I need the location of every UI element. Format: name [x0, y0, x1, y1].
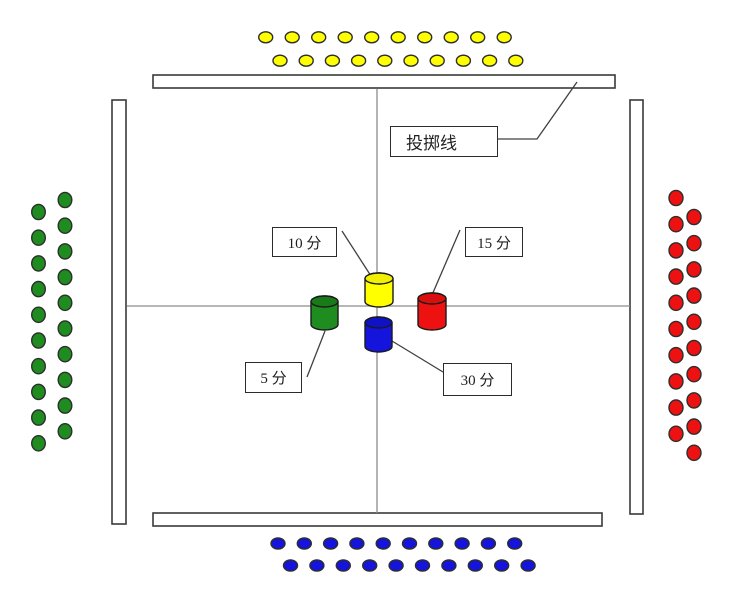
chip [32, 410, 46, 425]
chip [508, 538, 522, 549]
score-cylinders [311, 273, 446, 352]
chip [297, 538, 311, 549]
score-30-label: 30 分 [443, 363, 512, 396]
yellow-chips-top [259, 32, 523, 66]
green-chips-left [32, 192, 72, 451]
chip [325, 55, 339, 66]
chip [687, 288, 701, 303]
chip [483, 55, 497, 66]
chip [669, 243, 683, 258]
chip [58, 321, 72, 336]
left-wall [112, 100, 126, 524]
chip [32, 384, 46, 399]
chip [418, 32, 432, 43]
chip [32, 204, 46, 219]
chip [687, 445, 701, 460]
chip [471, 32, 485, 43]
chip [687, 209, 701, 224]
score-10-label-text: 10 分 [288, 232, 322, 253]
chip [403, 538, 417, 549]
score-5-label: 5 分 [245, 362, 302, 393]
chip [429, 538, 443, 549]
chip [338, 32, 352, 43]
chip [669, 269, 683, 284]
throw-line-label: 投掷线 [390, 126, 498, 157]
chip [58, 424, 72, 439]
chip [669, 348, 683, 363]
chip [669, 321, 683, 336]
chip [430, 55, 444, 66]
chip [468, 560, 482, 571]
chip [32, 359, 46, 374]
chip [509, 55, 523, 66]
chip [669, 426, 683, 441]
chip [687, 393, 701, 408]
chip [58, 398, 72, 413]
score-10-callout [342, 231, 371, 276]
score-15-label: 15 分 [465, 227, 523, 257]
chip [32, 307, 46, 322]
chip [32, 333, 46, 348]
chip [284, 560, 298, 571]
chip [299, 55, 313, 66]
chip [442, 560, 456, 571]
diagram-canvas [0, 0, 750, 593]
yellow-cylinder-top [365, 273, 393, 284]
chip [324, 538, 338, 549]
chip [58, 295, 72, 310]
top-wall [153, 75, 615, 88]
chip [495, 560, 509, 571]
red-cylinder [418, 293, 446, 330]
chip [273, 55, 287, 66]
chip [58, 192, 72, 207]
chip [669, 217, 683, 232]
chip [310, 560, 324, 571]
throw-line-label-text: 投掷线 [406, 129, 457, 154]
chip [58, 244, 72, 259]
chip [687, 236, 701, 251]
chip [58, 347, 72, 362]
score-15-callout [432, 230, 460, 295]
chip [497, 32, 511, 43]
chip [669, 190, 683, 205]
chip [271, 538, 285, 549]
chip [32, 230, 46, 245]
green-cylinder-top [311, 296, 338, 307]
chip [378, 55, 392, 66]
blue-cylinder [365, 317, 392, 352]
chip [687, 314, 701, 329]
chip [444, 32, 458, 43]
chip [416, 560, 430, 571]
chip [350, 538, 364, 549]
chip [58, 372, 72, 387]
chip [687, 367, 701, 382]
red-cylinder-top [418, 293, 446, 304]
chip [669, 374, 683, 389]
chip [285, 32, 299, 43]
throw-line-callout [498, 82, 577, 139]
chip [58, 218, 72, 233]
chip [456, 55, 470, 66]
blue-chips-bottom [271, 538, 535, 571]
chip [521, 560, 535, 571]
chip [404, 55, 418, 66]
chip [32, 256, 46, 271]
score-10-label: 10 分 [272, 227, 337, 257]
red-chips-right [669, 190, 701, 460]
chip [687, 262, 701, 277]
bottom-wall [153, 513, 602, 526]
chip [669, 295, 683, 310]
right-wall [630, 100, 643, 514]
chip [336, 560, 350, 571]
chip [32, 282, 46, 297]
score-15-label-text: 15 分 [477, 232, 511, 253]
chip [363, 560, 377, 571]
yellow-cylinder [365, 273, 393, 307]
chip [32, 436, 46, 451]
chip [376, 538, 390, 549]
chip [391, 32, 405, 43]
chip [389, 560, 403, 571]
chip [687, 340, 701, 355]
score-5-callout [307, 331, 325, 377]
score-30-label-text: 30 分 [461, 369, 495, 390]
chip [365, 32, 379, 43]
chip [352, 55, 366, 66]
chip [312, 32, 326, 43]
chip [669, 400, 683, 415]
chip [259, 32, 273, 43]
score-30-callout [392, 341, 443, 372]
chip [455, 538, 469, 549]
chip [687, 419, 701, 434]
game-field-diagram: 投掷线 10 分 15 分 5 分 30 分 [0, 0, 750, 593]
chip [481, 538, 495, 549]
chip [58, 270, 72, 285]
blue-cylinder-top [365, 317, 392, 328]
score-5-label-text: 5 分 [260, 367, 286, 388]
green-cylinder [311, 296, 338, 330]
